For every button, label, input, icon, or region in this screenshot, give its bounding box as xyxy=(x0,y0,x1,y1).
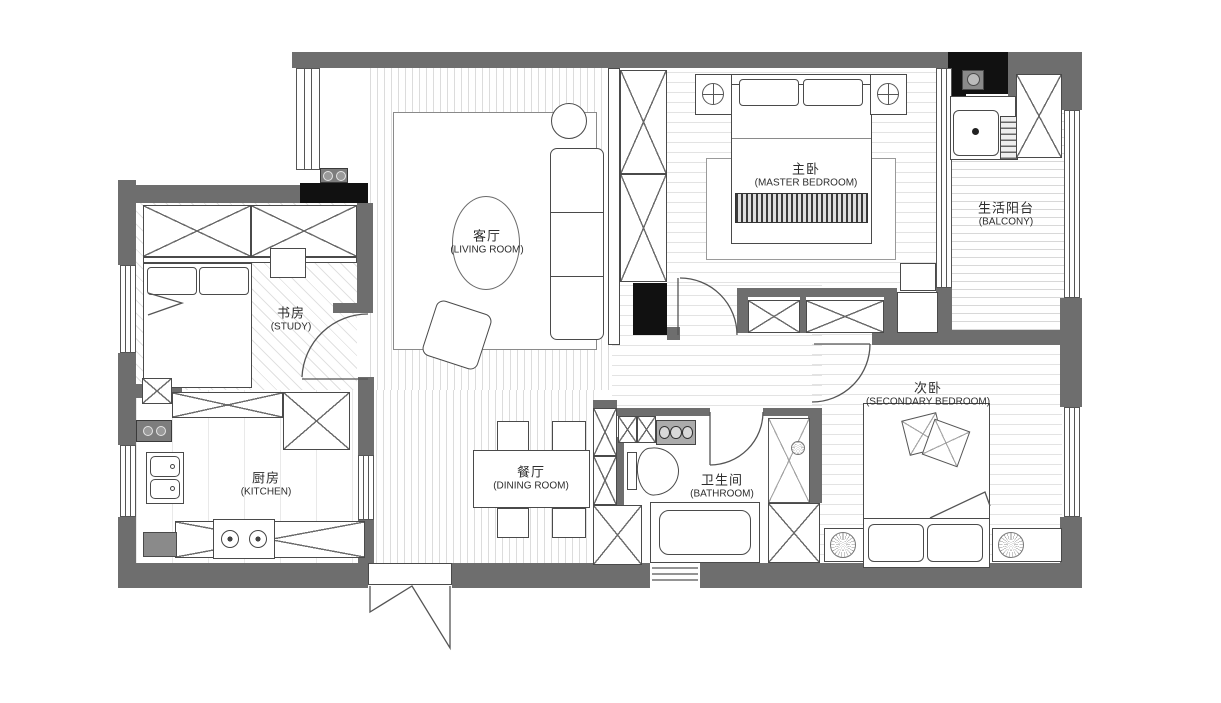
label-living-room: 客厅 (LIVING ROOM) xyxy=(450,229,523,258)
label-bathroom: 卫生间 (BATHROOM) xyxy=(690,473,754,502)
label-master-bedroom: 主卧 (MASTER BEDROOM) xyxy=(755,162,858,191)
label-bathroom-zh: 卫生间 xyxy=(690,473,754,489)
secondary-bed-fold-line xyxy=(930,492,990,518)
label-dining-room: 餐厅 (DINING ROOM) xyxy=(493,465,569,494)
label-dining-room-en: (DINING ROOM) xyxy=(493,481,569,494)
label-living-room-zh: 客厅 xyxy=(450,229,523,245)
label-balcony-en: (BALCONY) xyxy=(978,217,1034,230)
label-secondary-bedroom-zh: 次卧 xyxy=(866,381,990,397)
label-master-bedroom-zh: 主卧 xyxy=(755,162,858,178)
label-balcony-zh: 生活阳台 xyxy=(978,201,1034,217)
label-study: 书房 (STUDY) xyxy=(271,306,312,335)
label-living-room-en: (LIVING ROOM) xyxy=(450,245,523,258)
bathroom-door-arc xyxy=(710,412,763,465)
study-bed-fold-line xyxy=(148,293,182,315)
entry-direction-arrow xyxy=(370,586,450,648)
label-study-en: (STUDY) xyxy=(271,322,312,335)
study-door-arc xyxy=(302,314,368,377)
label-kitchen: 厨房 (KITCHEN) xyxy=(241,471,292,500)
label-study-zh: 书房 xyxy=(271,306,312,322)
annotations-overlay xyxy=(0,0,1221,703)
label-secondary-bedroom-en: (SECONDARY BEDROOM) xyxy=(866,397,990,410)
label-balcony: 生活阳台 (BALCONY) xyxy=(978,201,1034,230)
label-dining-room-zh: 餐厅 xyxy=(493,465,569,481)
floor-plan: 客厅 (LIVING ROOM) 主卧 (MASTER BEDROOM) 生活阳… xyxy=(0,0,1221,703)
label-bathroom-en: (BATHROOM) xyxy=(690,489,754,502)
label-master-bedroom-en: (MASTER BEDROOM) xyxy=(755,178,858,191)
secondary-door-arc xyxy=(812,344,870,402)
label-secondary-bedroom: 次卧 (SECONDARY BEDROOM) xyxy=(866,381,990,410)
label-kitchen-zh: 厨房 xyxy=(241,471,292,487)
master-door-arc xyxy=(680,278,737,335)
label-kitchen-en: (KITCHEN) xyxy=(241,487,292,500)
